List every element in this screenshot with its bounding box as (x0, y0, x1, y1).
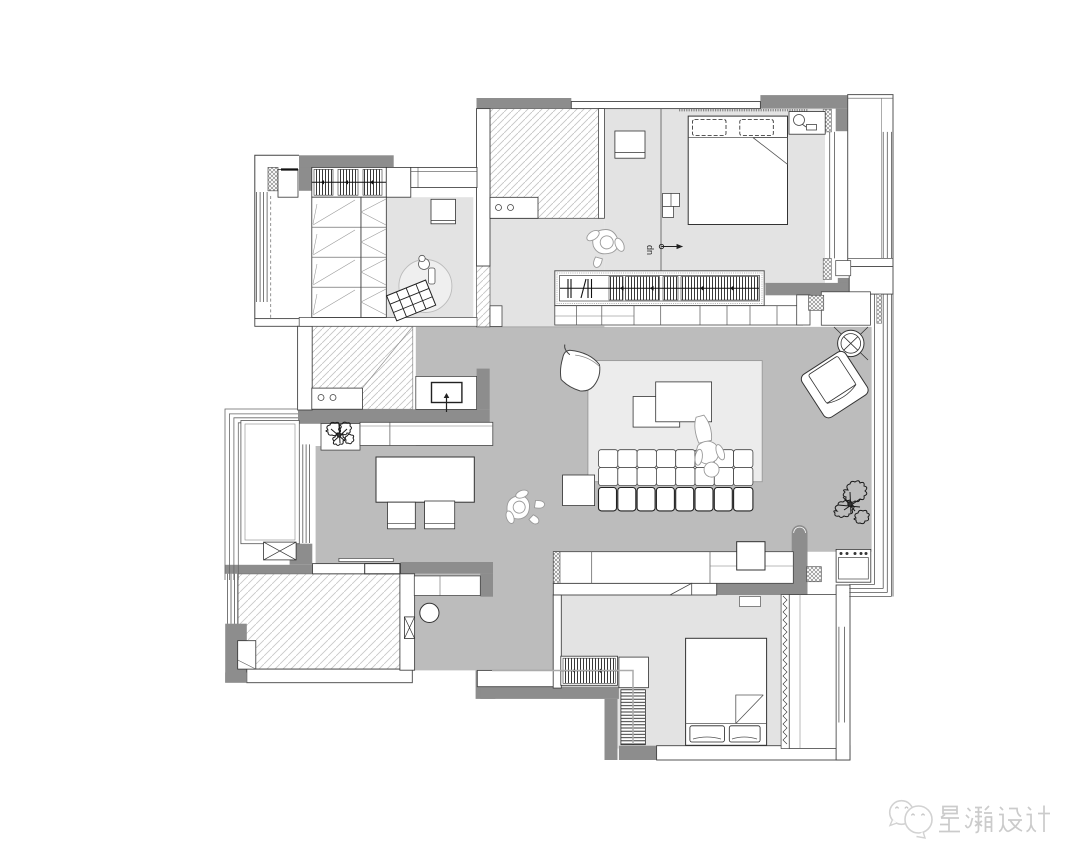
svg-text:up: up (644, 245, 654, 255)
